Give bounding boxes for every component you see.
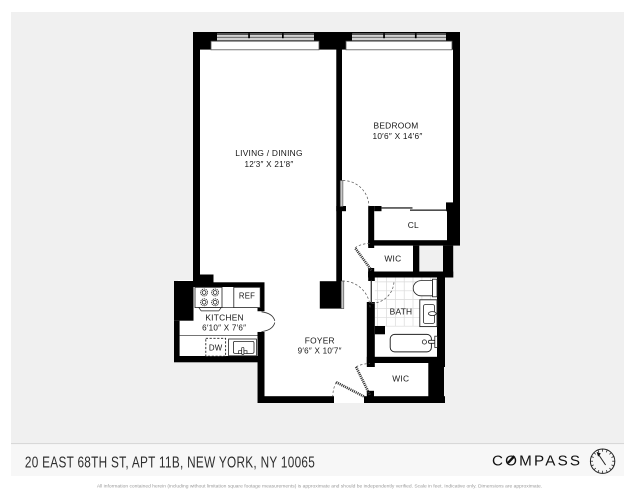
svg-text:9′6″ X 10′7″: 9′6″ X 10′7″: [298, 347, 342, 356]
svg-text:6′10″ X 7′6″: 6′10″ X 7′6″: [202, 324, 246, 333]
svg-text:BEDROOM: BEDROOM: [373, 120, 418, 130]
svg-text:DW: DW: [209, 344, 223, 353]
svg-text:KITCHEN: KITCHEN: [205, 312, 244, 322]
svg-text:REF: REF: [239, 292, 255, 301]
svg-text:10′6″ X 14′6″: 10′6″ X 14′6″: [372, 131, 422, 141]
svg-text:FOYER: FOYER: [305, 336, 335, 346]
svg-text:20 EAST 68TH ST, APT 11B, NEW: 20 EAST 68TH ST, APT 11B, NEW YORK, NY 1…: [25, 453, 315, 471]
svg-text:WIC: WIC: [384, 253, 401, 263]
svg-text:BATH: BATH: [390, 307, 413, 317]
svg-text:LIVING / DINING: LIVING / DINING: [235, 148, 303, 158]
svg-text:All information contained here: All information contained herein (includ…: [97, 484, 542, 490]
svg-text:CL: CL: [408, 220, 419, 230]
svg-text:12′3″ X 21′8″: 12′3″ X 21′8″: [245, 160, 294, 169]
svg-text:COMPASS: COMPASS: [492, 453, 582, 470]
svg-text:WIC: WIC: [392, 373, 409, 383]
